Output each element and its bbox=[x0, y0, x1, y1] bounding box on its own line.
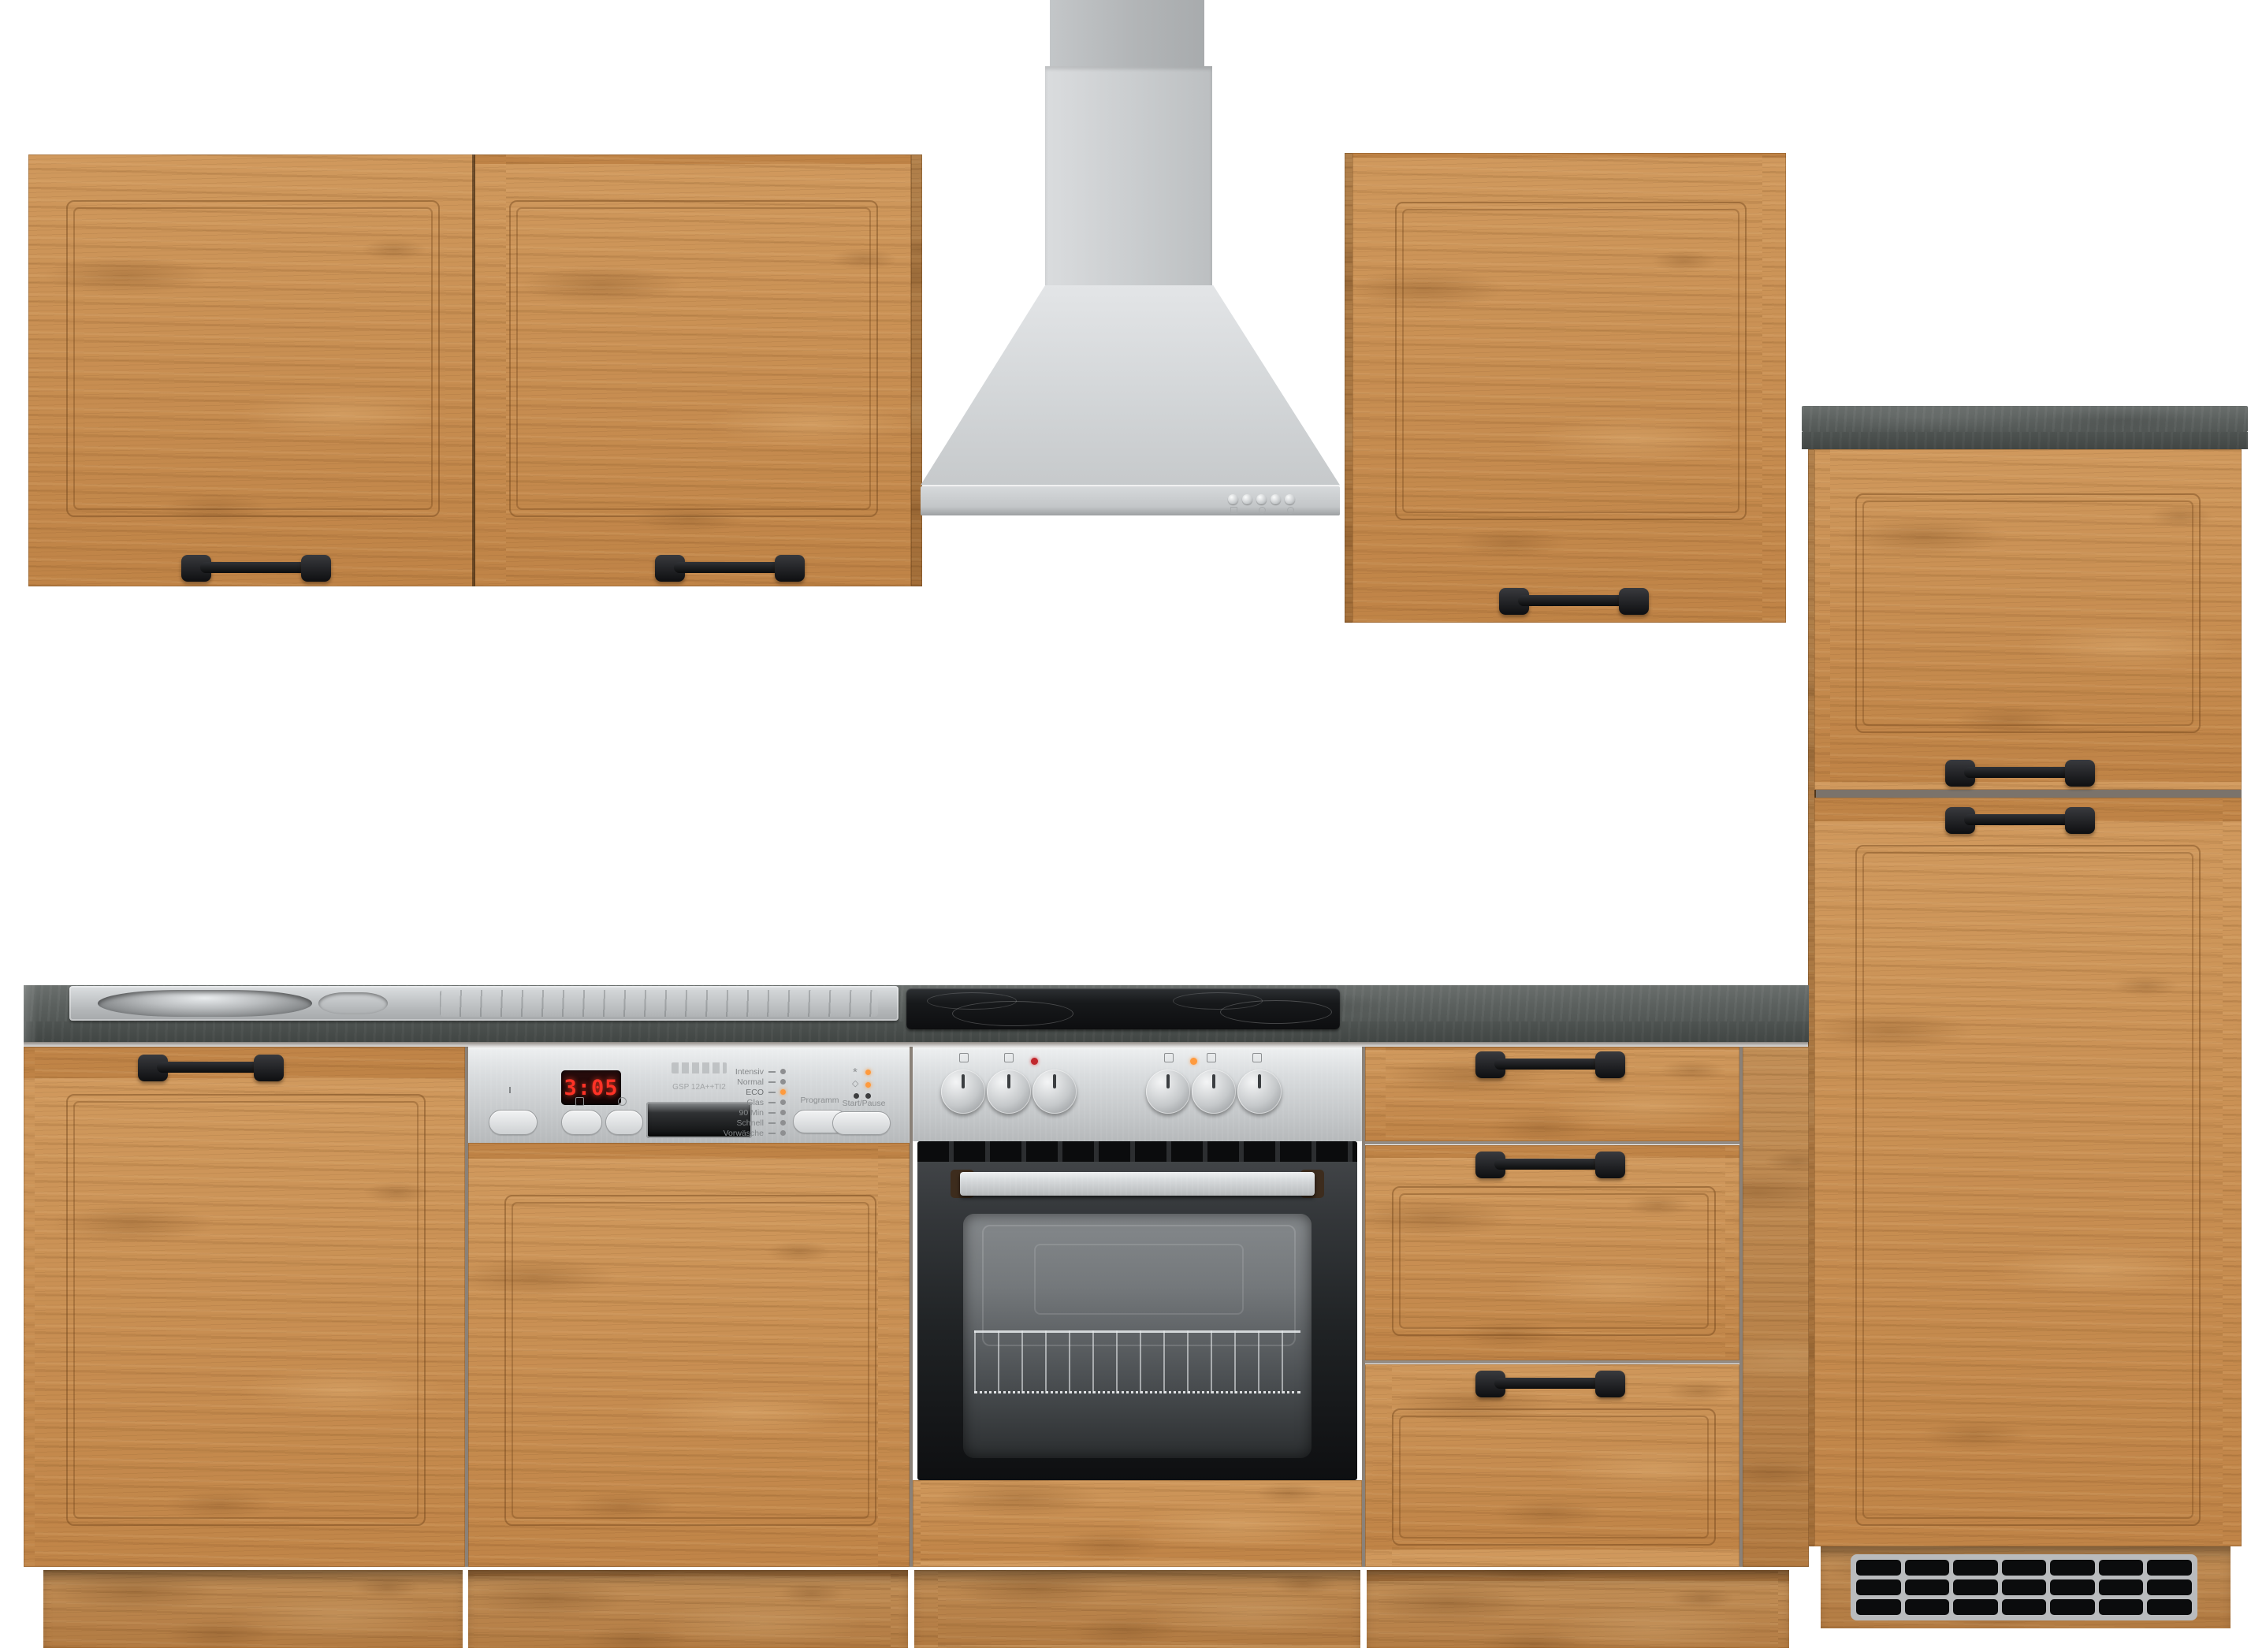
tall-cabinet-lower-door bbox=[1814, 798, 2242, 1546]
oven-handle bbox=[951, 1170, 1324, 1198]
oven-control-panel bbox=[913, 1047, 1362, 1141]
hood-button bbox=[1242, 494, 1252, 504]
oven-function-icon bbox=[1252, 1053, 1262, 1062]
tall-cabinet-upper-door bbox=[1814, 449, 2242, 790]
program-item: Normal bbox=[673, 1077, 764, 1087]
half-load-icon bbox=[618, 1097, 627, 1106]
program-item: 90 Min bbox=[673, 1108, 764, 1118]
program-led bbox=[780, 1079, 786, 1085]
led-display: 3:05 bbox=[561, 1070, 621, 1105]
status-led bbox=[865, 1093, 871, 1099]
burner-zone bbox=[927, 992, 1017, 1010]
oven-cavity-reflection-inner bbox=[1034, 1244, 1244, 1315]
oven-function-icon bbox=[1164, 1053, 1174, 1062]
drawer-frame-moulding bbox=[1392, 1408, 1716, 1546]
temperature-indicator-led bbox=[1031, 1058, 1038, 1065]
range-hood bbox=[921, 0, 1340, 515]
status-led bbox=[854, 1093, 859, 1099]
hood-chimney-lower bbox=[1045, 66, 1212, 287]
burner-zone bbox=[1220, 1000, 1332, 1024]
door-frame-moulding bbox=[66, 1094, 426, 1526]
door-frame-moulding bbox=[1855, 845, 2201, 1526]
wall-cabinet-left-door-1 bbox=[28, 154, 474, 586]
drawer-middle bbox=[1365, 1145, 1739, 1360]
display-time: 3:05 bbox=[564, 1076, 618, 1100]
cabinet-handle bbox=[181, 556, 331, 580]
ventilation-grille bbox=[1851, 1554, 2197, 1620]
filler-side-panel bbox=[1743, 1047, 1809, 1567]
door-frame-moulding bbox=[1395, 202, 1747, 520]
tall-cabinet-worktop bbox=[1802, 406, 2248, 432]
wall-cabinet-right-door bbox=[1352, 153, 1786, 623]
sink-drainer bbox=[440, 990, 878, 1017]
salt-indicator-icon: * bbox=[853, 1066, 858, 1079]
oven-vent-strip bbox=[917, 1141, 1357, 1162]
cooktop bbox=[906, 988, 1340, 1029]
program-led bbox=[780, 1069, 786, 1074]
door-frame-moulding bbox=[509, 200, 878, 517]
cabinet-handle bbox=[1945, 809, 2095, 832]
hotplate-knob bbox=[941, 1070, 985, 1114]
cabinet-handle bbox=[1945, 761, 2095, 785]
hotplate-icon bbox=[959, 1053, 969, 1062]
delay-timer-icon bbox=[575, 1097, 584, 1106]
hotplate-knob bbox=[987, 1070, 1031, 1114]
oven bbox=[913, 1047, 1362, 1567]
sink-base-cabinet-door bbox=[24, 1047, 465, 1567]
oven-indicator-led bbox=[1190, 1058, 1197, 1065]
hood-button bbox=[1271, 494, 1281, 504]
plinth bbox=[1367, 1570, 1789, 1648]
door-frame-moulding bbox=[504, 1195, 876, 1526]
sink-bowl bbox=[98, 990, 312, 1017]
program-item: Vorwäsche bbox=[673, 1129, 764, 1138]
hood-speed-icon bbox=[1259, 507, 1266, 514]
drawer-handle bbox=[1475, 1372, 1625, 1396]
program-led-active bbox=[780, 1089, 786, 1095]
oven-temperature-knob bbox=[1032, 1070, 1077, 1114]
program-led bbox=[780, 1120, 786, 1126]
oven-plinth-front bbox=[913, 1480, 1362, 1567]
rinse-aid-indicator-led bbox=[865, 1082, 871, 1088]
power-icon bbox=[504, 1091, 515, 1101]
kitchen-product-photo: 3:05 GSP 12A++TI2 Intensiv Normal ECO Gl… bbox=[0, 0, 2251, 1652]
cabinet-handle bbox=[138, 1056, 284, 1080]
start-pause-button-label: Start/Pause bbox=[824, 1099, 903, 1108]
hotplate-knob bbox=[1192, 1070, 1236, 1114]
sink bbox=[69, 986, 899, 1021]
dishwasher-door bbox=[468, 1143, 910, 1567]
drawer-handle bbox=[1475, 1053, 1625, 1077]
drawer-unit bbox=[1365, 1047, 1739, 1567]
plinth bbox=[914, 1570, 1360, 1648]
power-button bbox=[489, 1110, 538, 1135]
program-led bbox=[780, 1130, 786, 1136]
wall-cabinet-left-door-2 bbox=[474, 154, 911, 586]
hood-button bbox=[1285, 494, 1295, 504]
drawer-handle bbox=[1475, 1153, 1625, 1177]
plinth bbox=[468, 1570, 908, 1648]
option-button bbox=[605, 1110, 643, 1135]
program-item: Glas bbox=[673, 1098, 764, 1107]
hood-canopy-rim bbox=[921, 486, 1340, 515]
program-led bbox=[780, 1110, 786, 1115]
door-frame-moulding bbox=[66, 200, 440, 517]
rinse-aid-indicator-icon: ◇ bbox=[852, 1078, 858, 1088]
hotplate-knob bbox=[1237, 1070, 1282, 1114]
wall-cabinet-right bbox=[1345, 153, 1786, 623]
oven-function-knob bbox=[1146, 1070, 1190, 1114]
door-frame-moulding bbox=[1855, 493, 2201, 733]
drawer-top bbox=[1365, 1047, 1739, 1141]
hotplate-icon bbox=[1004, 1053, 1014, 1062]
hood-button bbox=[1256, 494, 1267, 504]
dishwasher-control-panel: 3:05 GSP 12A++TI2 Intensiv Normal ECO Gl… bbox=[468, 1047, 910, 1145]
hood-canopy bbox=[921, 285, 1340, 487]
start-pause-button bbox=[832, 1111, 891, 1135]
tall-cabinet-body bbox=[1808, 449, 2242, 1546]
tall-cabinet-worktop-edge bbox=[1802, 432, 2248, 449]
program-item: Schnell bbox=[673, 1118, 764, 1128]
wall-cabinet-left bbox=[28, 154, 922, 586]
hood-speed-icon bbox=[1287, 507, 1294, 514]
tall-cabinet-plinth bbox=[1821, 1546, 2231, 1628]
hood-chimney-upper bbox=[1050, 0, 1204, 68]
hood-light-icon bbox=[1230, 507, 1237, 514]
program-list: Intensiv Normal ECO Glas 90 Min Schnell … bbox=[673, 1047, 799, 1143]
oven-rack bbox=[974, 1330, 1300, 1393]
program-item: ECO bbox=[673, 1088, 764, 1097]
worktop-end-face bbox=[24, 985, 38, 1042]
oven-door bbox=[917, 1141, 1357, 1480]
sink-small-bowl bbox=[318, 992, 388, 1014]
tall-cabinet bbox=[1802, 406, 2248, 1628]
program-item: Intensiv bbox=[673, 1067, 764, 1077]
cabinet-handle bbox=[655, 556, 805, 580]
oven-window bbox=[963, 1214, 1312, 1458]
oven-function-icon bbox=[1207, 1053, 1216, 1062]
drawer-frame-moulding bbox=[1392, 1186, 1716, 1336]
option-button bbox=[561, 1110, 602, 1135]
plinth bbox=[43, 1570, 463, 1648]
drawer-bottom bbox=[1365, 1364, 1739, 1567]
cabinet-handle bbox=[1499, 590, 1649, 613]
hood-button bbox=[1228, 494, 1238, 504]
salt-indicator-led bbox=[865, 1070, 871, 1075]
dishwasher: 3:05 GSP 12A++TI2 Intensiv Normal ECO Gl… bbox=[468, 1047, 910, 1567]
